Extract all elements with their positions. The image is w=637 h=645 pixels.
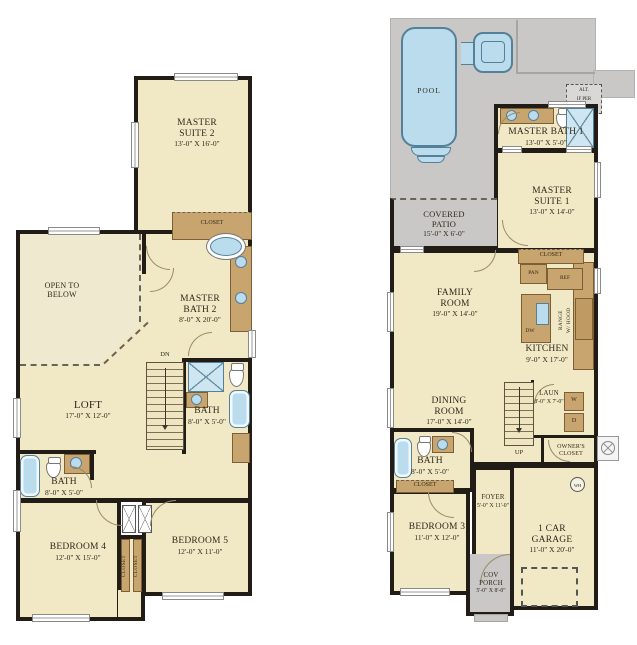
room-dims: 5'-0" X 11'-0" [475,503,511,509]
closet-label: CLOSET [518,252,584,259]
ac-unit-icon [597,436,619,461]
room-dims: 13'-0" X 14'-0" [529,208,575,216]
fan-icon [601,441,615,455]
stairs-up [504,382,534,446]
room-name: FAMILY ROOM [430,288,480,309]
fridge-label: REF [547,275,583,281]
pool-steps [417,156,445,163]
window [387,388,394,428]
room-name: 1 CAR GARAGE [528,524,576,545]
window [594,162,601,198]
dishwasher-label: DW [521,328,539,334]
room-name: DINING ROOM [424,396,474,417]
window [502,146,522,153]
room-name: COV PORCH [476,572,506,587]
room-name: BATH [400,456,460,467]
room-name: KITCHEN [505,344,589,355]
room-name: MASTER BATH 1 [500,127,592,138]
room-name: COVERED PATIO [416,210,472,229]
sink-fixture [437,439,448,450]
island-sink-fixture [536,303,549,325]
room-bedroom-3 [390,490,470,595]
pool-steps [411,147,451,156]
label-foyer: FOYER 5'-0" X 11'-0" [475,494,511,509]
spa-inner [481,41,505,63]
label-family-room: FAMILY ROOM 19'-0" X 14'-0" [430,288,480,319]
pantry-label: PAN [520,270,547,276]
label-master-suite-1: MASTER SUITE 1 13'-0" X 14'-0" [524,186,580,217]
porch-step [474,614,508,622]
room-dims: 19'-0" X 14'-0" [432,310,478,318]
deck-edge-line [516,20,518,73]
room-name: FOYER [475,494,511,502]
window [594,268,601,294]
window [387,512,394,552]
dryer-label: D [564,418,584,425]
label-cov-porch: COV PORCH 5'-0" X 8'-0" [476,572,506,595]
window [548,101,586,108]
area-name: POOL [405,87,453,95]
first-floor-plan: POOL ALT. IF PER MUNIC. RANGE W/ HOOD CL… [0,0,637,645]
alt-note-line1: ALT. [567,87,601,96]
room-dims: 13'-0" X 5'-0" [525,139,567,147]
window [400,246,424,253]
label-garage: 1 CAR GARAGE 11'-0" X 20'-0" [528,524,576,555]
room-dims: 11'-0" X 12'-0" [414,534,459,542]
wall-segment [541,438,544,466]
deck-edge-line [516,72,595,74]
label-master-bath-1: MASTER BATH 1 13'-0" X 5'-0" [500,127,592,147]
window [400,588,450,596]
floorplan-canvas: CLOSET CLOSET CLOSET DN [0,0,637,645]
range-label-line2: W/ HOOD [566,298,574,342]
label-pool: POOL [405,87,453,95]
room-name: MASTER SUITE 1 [524,186,580,207]
room-dims: 15'-0" X 6'-0" [423,230,465,238]
range-label-line1: RANGE [558,298,566,342]
room-dims: 8'-0" X 5'-0" [411,468,449,476]
room-dims: 9'-0" X 17'-0" [526,356,568,364]
label-dining-room: DINING ROOM 17'-0" X 14'-0" [424,396,474,427]
label-bedroom-3: BEDROOM 3 11'-0" X 12'-0" [394,522,480,542]
label-bath-1: BATH 8'-0" X 5'-0" [400,456,460,476]
label-laundry: LAUN 8'-0" X 7'-0" [534,390,564,405]
range [575,298,593,340]
room-dims: 11'-0" X 20'-0" [529,546,574,554]
room-dims: 8'-0" X 7'-0" [534,399,564,405]
sink-fixture [528,110,539,121]
stairs-up-label: UP [504,449,534,456]
label-owners-closet: OWNER'S CLOSET [550,444,592,457]
room-dims: 5'-0" X 8'-0" [476,588,505,594]
room-foyer [472,466,514,558]
room-dims: 17'-0" X 14'-0" [426,418,472,426]
room-name: LAUN [534,390,564,398]
garage-door-dashed [521,567,578,607]
washer-label: W [564,397,584,404]
closet-label: CLOSET [396,482,454,489]
water-heater: WH [570,477,585,492]
window [566,146,592,153]
window [387,292,394,332]
room-name: OWNER'S CLOSET [550,444,592,457]
label-covered-patio: COVERED PATIO 15'-0" X 6'-0" [416,210,472,238]
room-name: BEDROOM 3 [394,522,480,533]
label-kitchen: KITCHEN 9'-0" X 17'-0" [505,344,589,364]
